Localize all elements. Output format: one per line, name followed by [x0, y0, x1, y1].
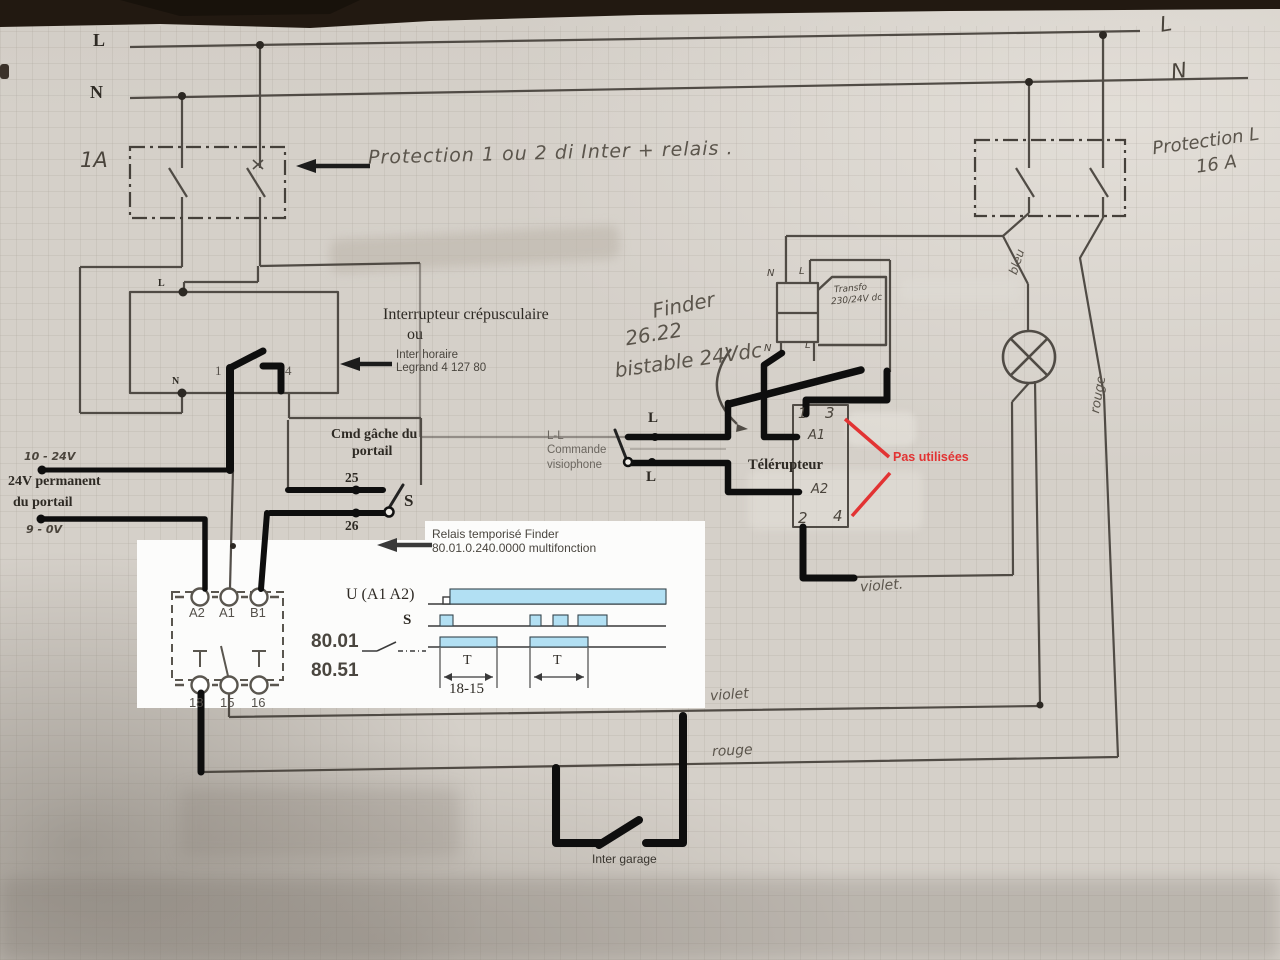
tele-pin-3: 3: [825, 404, 835, 422]
visiophone-l-top: L: [648, 410, 658, 427]
unused-terminal-lines: [845, 419, 890, 516]
transfo-pin-n-bot: N: [764, 343, 771, 354]
tele-pin-2: 2: [798, 509, 808, 527]
breaker-rating-label: 1A: [80, 148, 108, 172]
visiophone-line3: visiophone: [547, 459, 602, 471]
relais-note-line1: Relais temporisé Finder: [432, 527, 559, 541]
crepusculaire-pin-1: 1: [215, 363, 222, 379]
transfo-pin-n-top: N: [767, 268, 774, 279]
telerupteur-title: Télérupteur: [748, 457, 823, 474]
paper-mark: [0, 64, 9, 79]
timing-s-label: S: [403, 612, 411, 629]
timing-1815-label: 18-15: [449, 681, 484, 698]
supply-line1: 24V permanent: [8, 474, 101, 490]
tele-pin-a1: A1: [808, 428, 825, 443]
supply-minus-label: 9 - 0V: [26, 523, 62, 536]
crepusculaire-pin-l: L: [158, 278, 165, 289]
timing-t2-label: T: [553, 653, 562, 669]
timing-t1-label: T: [463, 653, 472, 669]
rail-n-label-right: N: [1169, 58, 1188, 84]
timing-u-label: U (A1 A2): [346, 586, 414, 604]
wire-violet-mid-label: violet.: [859, 577, 903, 596]
supply-plus-label: 10 - 24V: [24, 450, 75, 463]
cmd-gache-line1: Cmd gâche du: [331, 427, 417, 443]
crepusculaire-ou: ou: [407, 326, 423, 344]
terminal-25-label: 25: [345, 470, 359, 486]
crepusculaire-pin-4: 4: [285, 363, 292, 379]
relay-pin-15: 15: [220, 695, 234, 710]
cmd-gache-line2: portail: [352, 444, 392, 460]
relay-model-8001: 80.01: [311, 631, 359, 653]
wire-violet-label: violet: [709, 686, 749, 705]
visiophone-line2: Commande: [547, 444, 606, 456]
switch-pivot: [624, 458, 632, 466]
schematic-photo: L N L N 1A Protection 1 ou 2 di Inter + …: [0, 0, 1280, 960]
supply-line2: du portail: [13, 495, 73, 511]
relay-pin-18: 18: [189, 695, 203, 710]
switch-s-label: S: [404, 491, 413, 511]
transfo-pin-l-bot: L: [805, 340, 811, 351]
tele-pin-a2: A2: [811, 482, 828, 497]
relais-note-line2: 80.01.0.240.0000 multifonction: [432, 541, 596, 555]
transfo-pin-l-top: L: [799, 266, 805, 277]
rail-n-label: N: [90, 82, 103, 103]
crepusculaire-title: Interrupteur crépusculaire: [383, 306, 549, 324]
visiophone-l-bottom: L: [646, 469, 656, 486]
relay-pin-16: 16: [251, 695, 265, 710]
terminal-26-label: 26: [345, 518, 359, 534]
crepusculaire-pin-n: N: [172, 376, 179, 387]
visiophone-line1: L-L: [547, 430, 564, 442]
relay-pin-a2: A2: [189, 605, 205, 620]
rail-l-label: L: [93, 30, 105, 51]
wire-rouge-label: rouge: [712, 742, 753, 760]
tele-pin-4: 4: [833, 507, 843, 525]
relay-model-8051: 80.51: [311, 660, 359, 682]
relay-pin-b1: B1: [250, 605, 266, 620]
tele-pin-1: 1: [798, 406, 807, 422]
inter-horaire-label: Inter horaire: [396, 349, 458, 361]
legrand-ref-label: Legrand 4 127 80: [396, 362, 486, 374]
unused-terminals-label: Pas utilisées: [893, 450, 969, 464]
inter-garage-label: Inter garage: [592, 852, 657, 866]
relay-pin-a1: A1: [219, 605, 235, 620]
switch-pivot: [385, 508, 394, 517]
